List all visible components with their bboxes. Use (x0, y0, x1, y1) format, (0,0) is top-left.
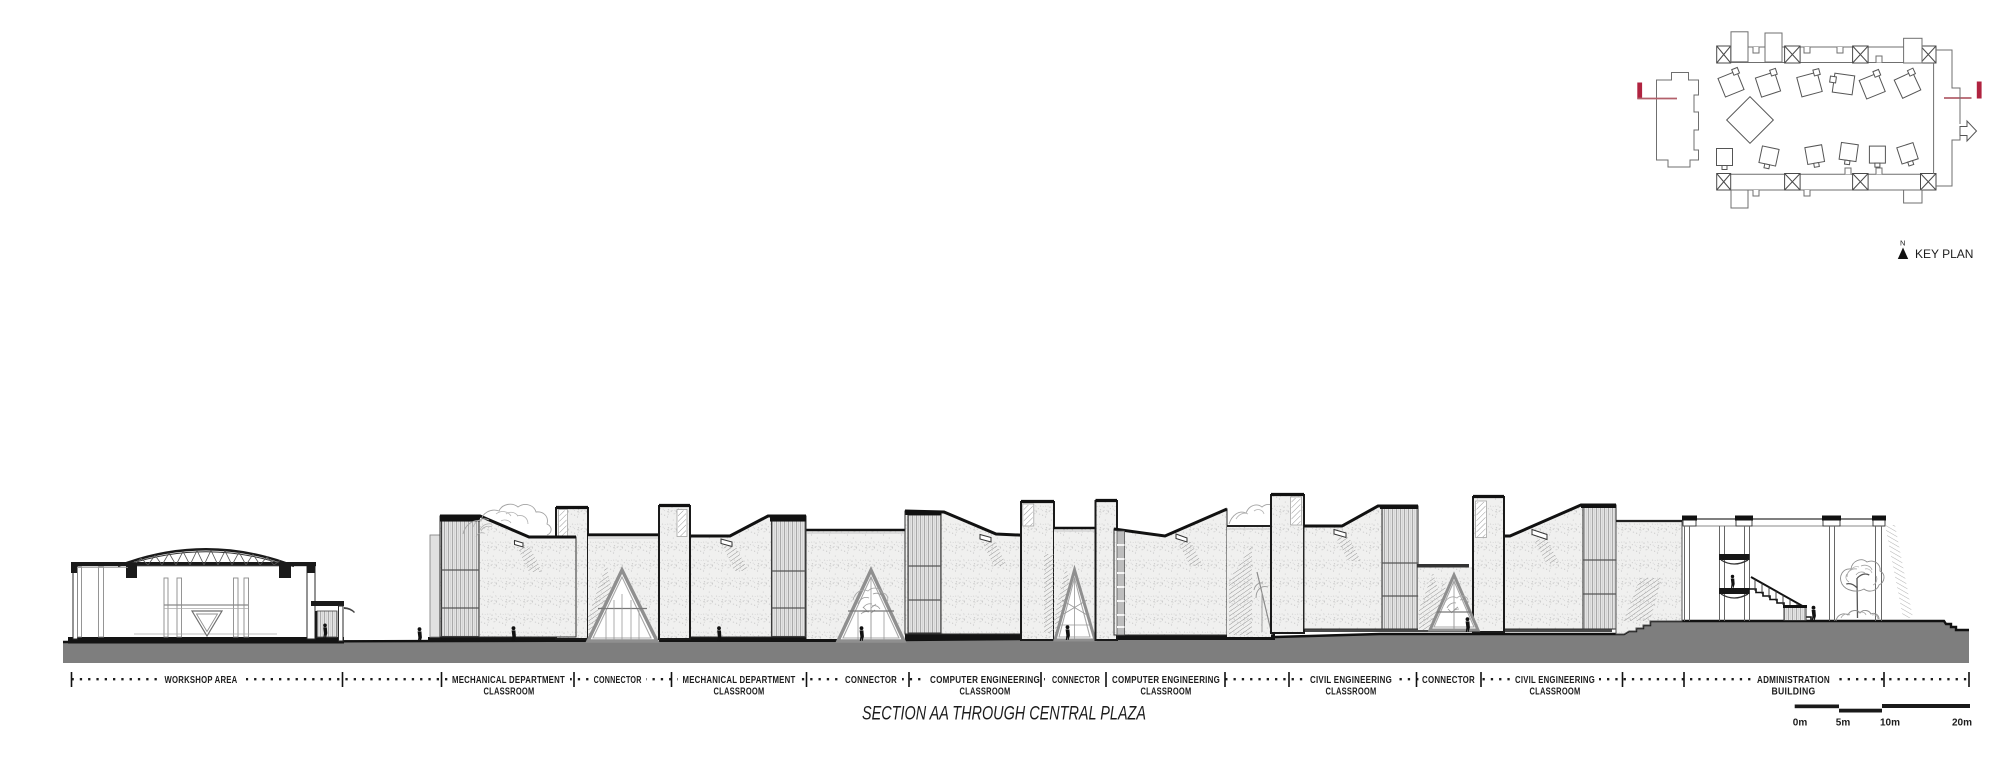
svg-text:CLASSROOM: CLASSROOM (1141, 687, 1192, 698)
svg-text:KEY PLAN: KEY PLAN (1915, 247, 1973, 261)
svg-text:CONNECTOR: CONNECTOR (1052, 675, 1100, 686)
svg-text:CONNECTOR: CONNECTOR (594, 675, 642, 686)
svg-text:COMPUTER ENGINEERING: COMPUTER ENGINEERING (930, 675, 1040, 686)
svg-text:CLASSROOM: CLASSROOM (960, 687, 1011, 698)
svg-text:ADMINISTRATION: ADMINISTRATION (1757, 675, 1830, 686)
svg-text:CONNECTOR: CONNECTOR (845, 675, 897, 686)
svg-text:CIVIL ENGINEERING: CIVIL ENGINEERING (1310, 675, 1392, 686)
svg-text:CLASSROOM: CLASSROOM (1326, 687, 1377, 698)
svg-text:BUILDING: BUILDING (1772, 687, 1816, 698)
svg-text:CLASSROOM: CLASSROOM (714, 687, 765, 698)
svg-text:MECHANICAL DEPARTMENT: MECHANICAL DEPARTMENT (452, 675, 565, 686)
svg-text:N: N (1900, 239, 1905, 248)
svg-text:COMPUTER ENGINEERING: COMPUTER ENGINEERING (1112, 675, 1220, 686)
svg-text:5m: 5m (1836, 718, 1851, 729)
svg-text:20m: 20m (1952, 718, 1972, 729)
svg-text:WORKSHOP AREA: WORKSHOP AREA (165, 675, 238, 686)
svg-text:CONNECTOR: CONNECTOR (1422, 675, 1475, 686)
svg-text:MECHANICAL DEPARTMENT: MECHANICAL DEPARTMENT (683, 675, 796, 686)
svg-text:CLASSROOM: CLASSROOM (1530, 687, 1581, 698)
svg-text:0m: 0m (1793, 718, 1808, 729)
svg-text:CLASSROOM: CLASSROOM (484, 687, 535, 698)
svg-text:CIVIL ENGINEERING: CIVIL ENGINEERING (1515, 675, 1595, 686)
svg-text:SECTION AA THROUGH CENTRAL PLA: SECTION AA THROUGH CENTRAL PLAZA (862, 704, 1146, 725)
svg-text:10m: 10m (1880, 718, 1900, 729)
